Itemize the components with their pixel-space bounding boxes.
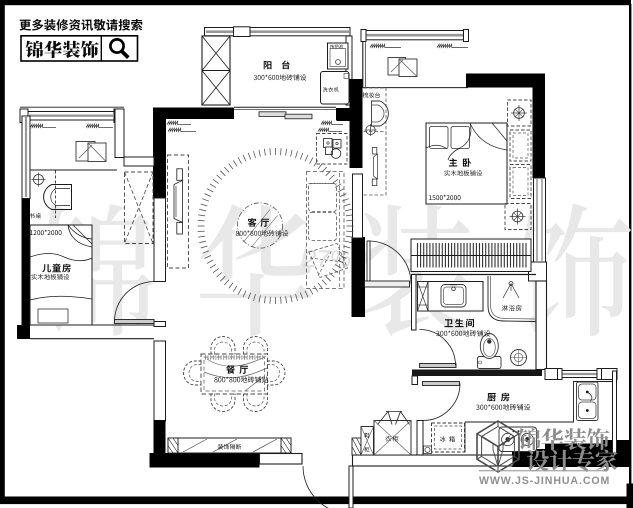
svg-text:WWW.JS-JINHUA.COM: WWW.JS-JINHUA.COM xyxy=(479,475,610,487)
